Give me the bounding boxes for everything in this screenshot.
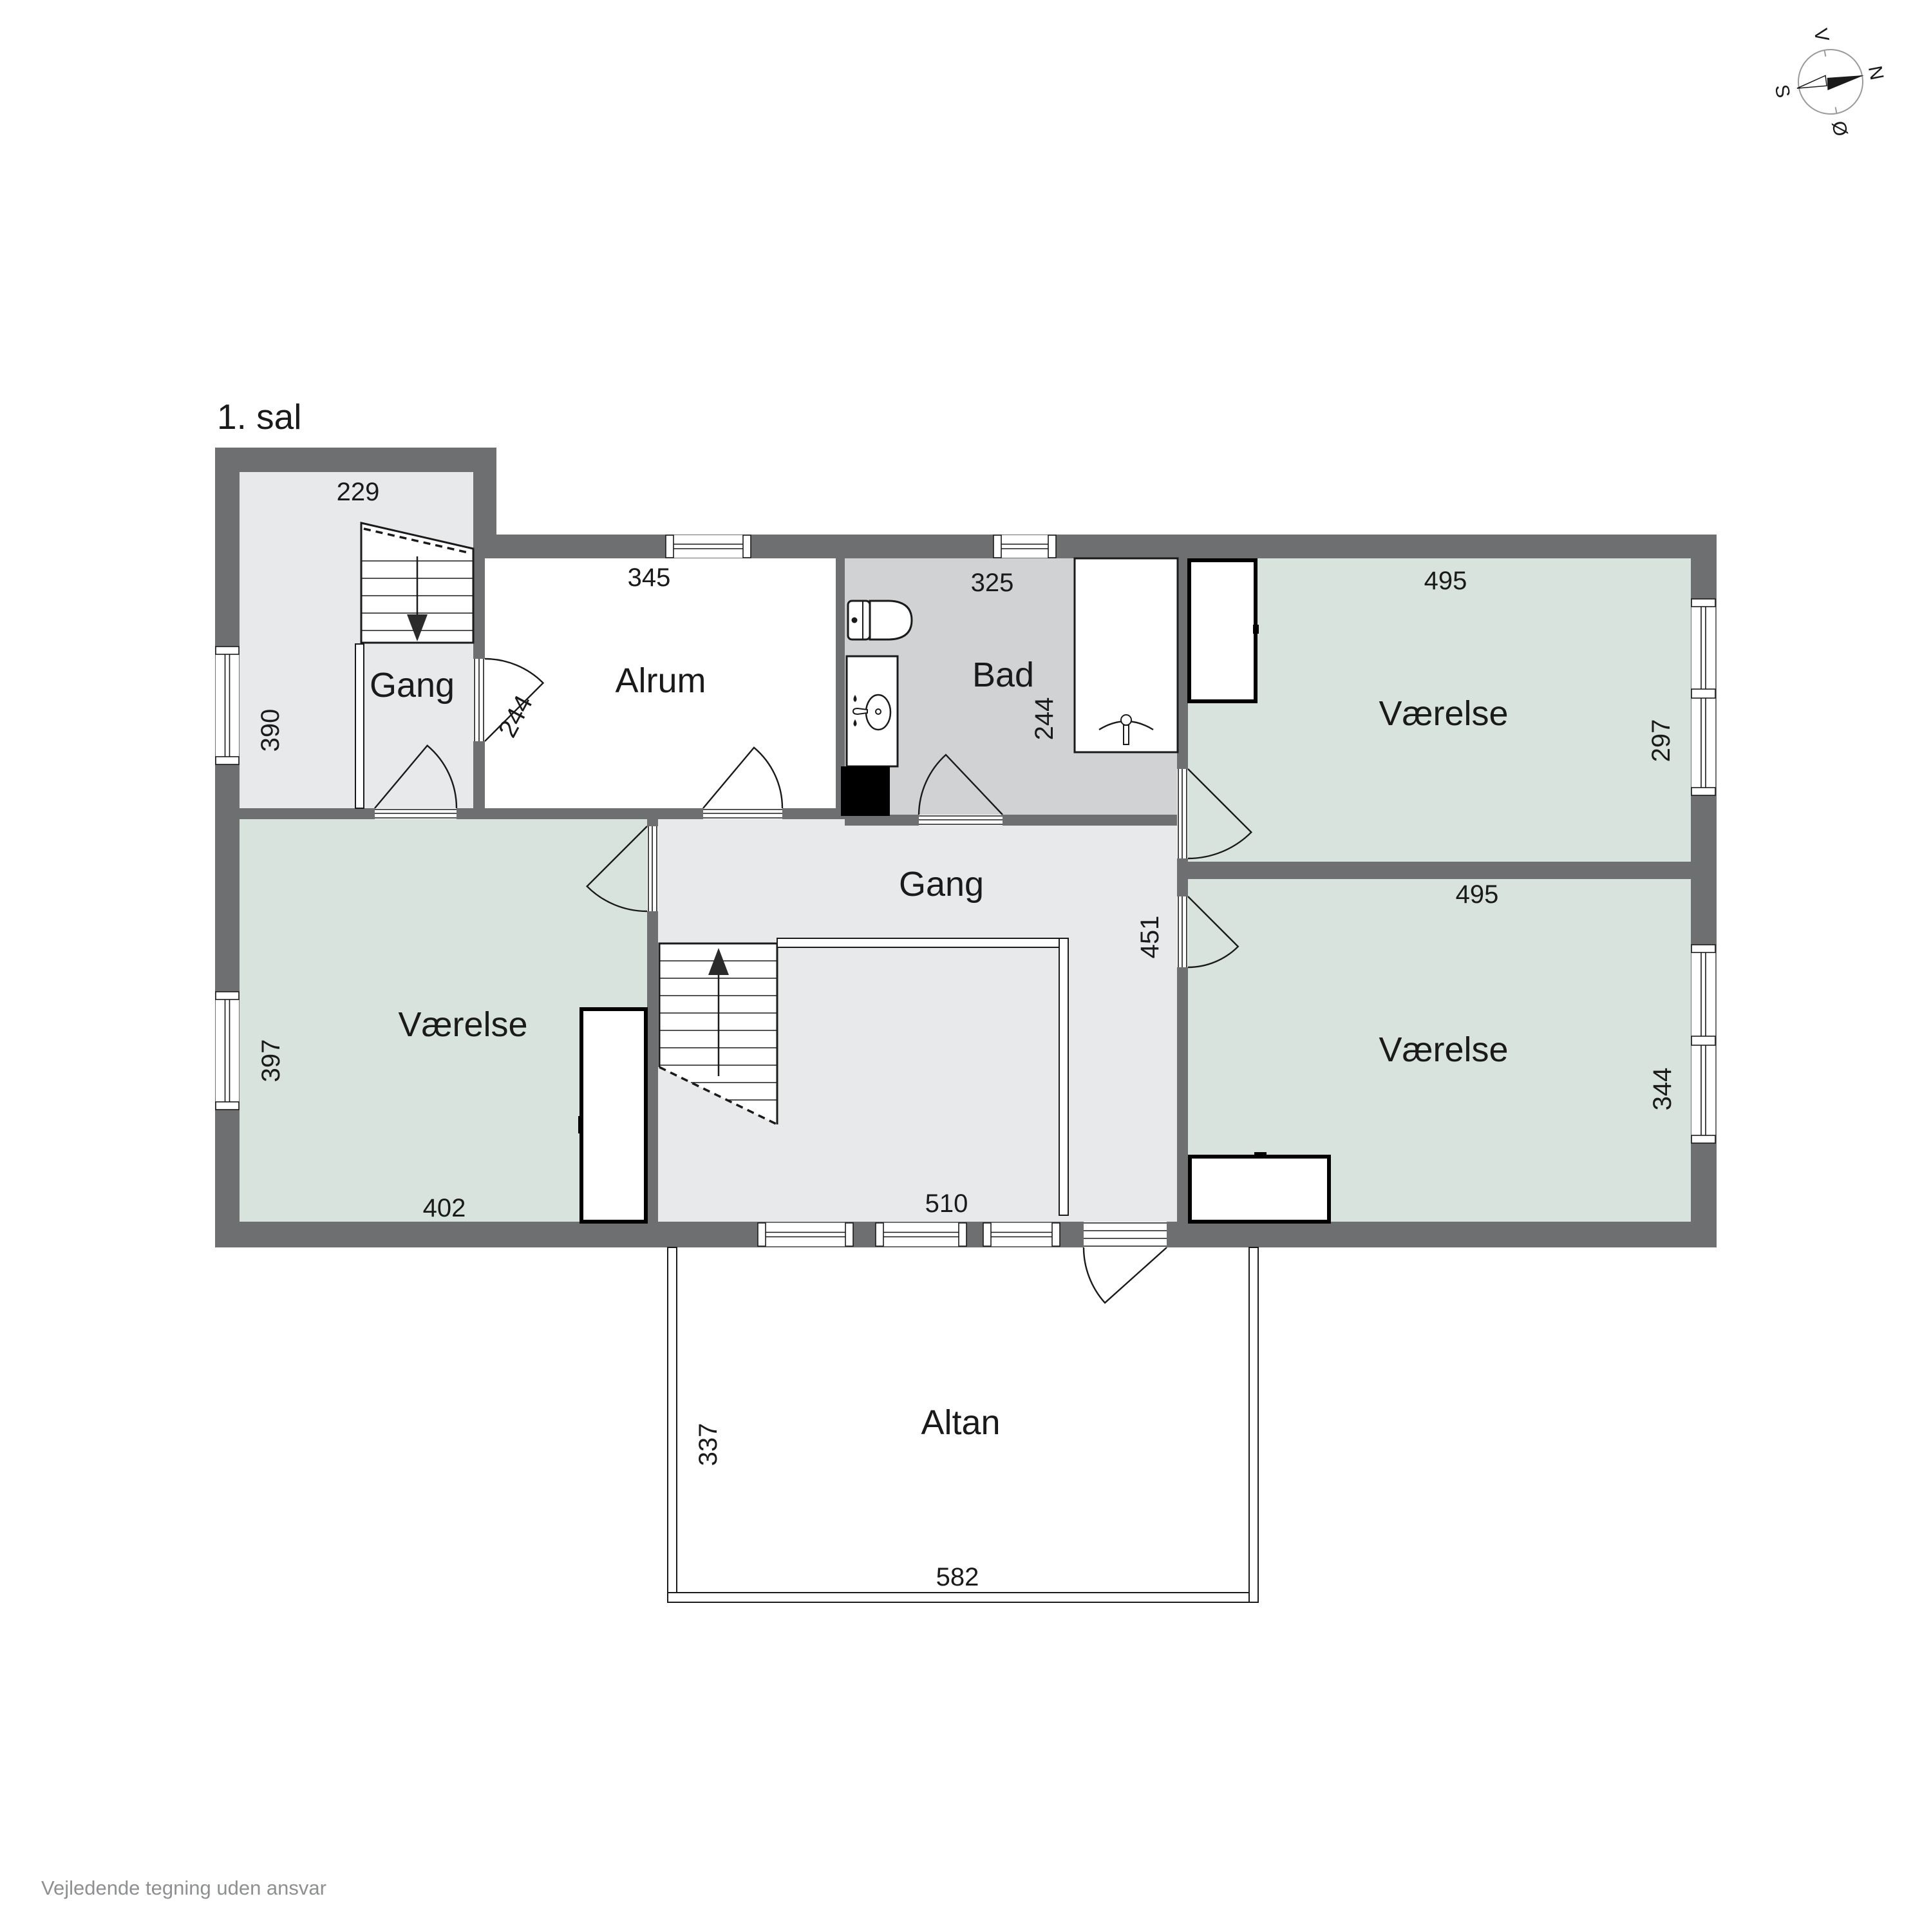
svg-text:397: 397	[257, 1039, 285, 1083]
svg-text:229: 229	[337, 478, 380, 506]
svg-text:Vejledende tegning uden ansvar: Vejledende tegning uden ansvar	[41, 1877, 326, 1899]
svg-text:495: 495	[1424, 567, 1467, 595]
svg-text:Gang: Gang	[899, 865, 984, 904]
svg-text:244: 244	[1030, 697, 1059, 741]
svg-text:337: 337	[694, 1423, 722, 1466]
svg-text:344: 344	[1648, 1068, 1677, 1111]
svg-text:Værelse: Værelse	[398, 1005, 527, 1044]
svg-text:Altan: Altan	[921, 1403, 1000, 1442]
svg-text:Alrum: Alrum	[615, 661, 706, 700]
svg-text:510: 510	[925, 1189, 968, 1218]
svg-text:Værelse: Værelse	[1379, 694, 1508, 733]
svg-text:Gang: Gang	[370, 666, 455, 705]
svg-text:495: 495	[1456, 880, 1499, 909]
svg-text:Værelse: Værelse	[1379, 1030, 1508, 1069]
svg-text:297: 297	[1647, 719, 1675, 762]
svg-text:451: 451	[1136, 916, 1164, 959]
svg-text:325: 325	[971, 569, 1014, 597]
svg-text:582: 582	[936, 1563, 979, 1591]
svg-text:1. sal: 1. sal	[217, 397, 301, 437]
svg-text:390: 390	[256, 709, 285, 752]
svg-text:Bad: Bad	[972, 656, 1034, 694]
svg-text:345: 345	[628, 563, 671, 592]
svg-text:402: 402	[423, 1194, 466, 1222]
